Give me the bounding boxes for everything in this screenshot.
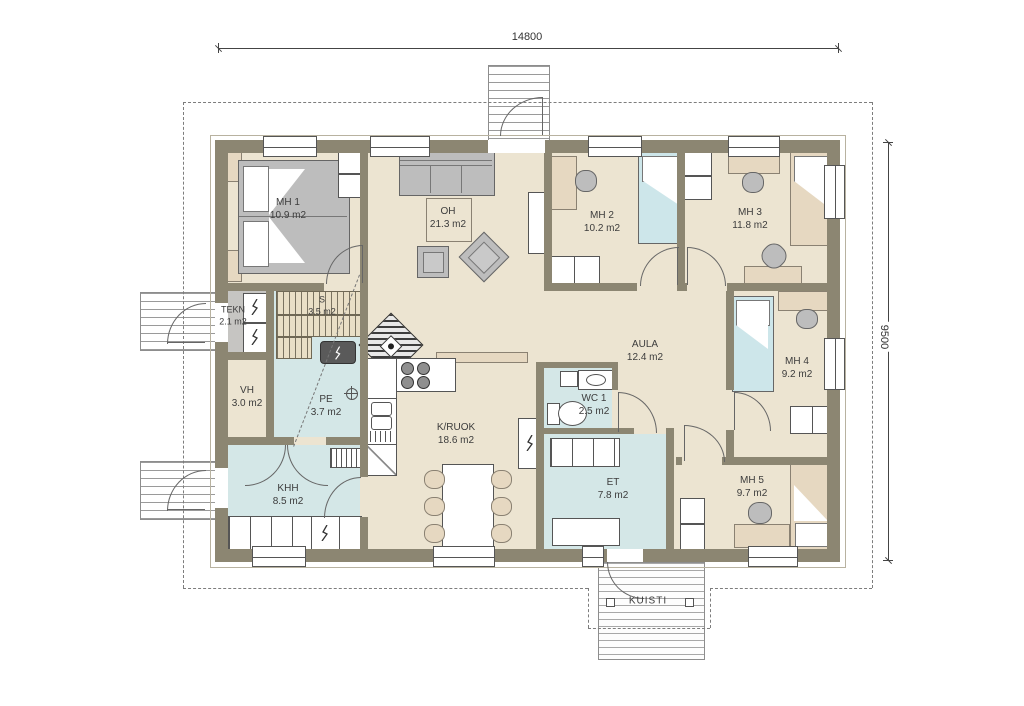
- room-area: 9.7 m2: [737, 487, 768, 500]
- back-door-opening: [488, 140, 545, 153]
- roof-outline-right: [872, 102, 873, 588]
- wall-wc-top: [544, 362, 612, 368]
- wall-mh3-mh4: [727, 283, 827, 291]
- wall-vh-pe: [266, 352, 274, 445]
- desk: [778, 291, 834, 311]
- roof-outline-bottom-right: [710, 588, 872, 589]
- room-area: 3.0 m2: [232, 397, 263, 410]
- shower-drain: [346, 388, 358, 400]
- utility-counter: [228, 516, 312, 550]
- window: [728, 136, 780, 157]
- porch-label: KUISTI: [629, 595, 667, 608]
- room-label-mh5: MH 5 9.7 m2: [737, 474, 768, 500]
- dishwasher: [366, 444, 397, 476]
- door-leaf-back-entrance: [542, 97, 543, 135]
- window: [370, 136, 430, 157]
- window: [582, 546, 604, 567]
- lightning-icon: [525, 435, 535, 451]
- kitchen-sink: [366, 398, 397, 446]
- wall-pe-khh: [326, 437, 368, 445]
- pillow: [642, 156, 680, 182]
- closet: [680, 524, 705, 550]
- floor-plan: 14800 9500: [0, 0, 1024, 706]
- room-area: 11.8 m2: [732, 219, 767, 232]
- lightning-icon: [320, 525, 330, 541]
- wall-et-mh5: [666, 428, 674, 549]
- pillow: [243, 221, 269, 267]
- room-name: WC 1: [579, 392, 610, 405]
- utility-cabinet: [339, 516, 362, 550]
- sauna-bench: [276, 337, 312, 359]
- room-area: 12.4 m2: [627, 351, 663, 364]
- dining-chair: [424, 524, 445, 543]
- sofa-cushion-line: [430, 165, 431, 193]
- entry-closet: [550, 438, 620, 467]
- kitchen-cabinet: [366, 358, 397, 400]
- dimension-depth-label: 9500: [878, 322, 890, 352]
- door-leaf-mh3: [687, 247, 688, 285]
- pillow: [795, 523, 830, 547]
- room-label-oh: OH 21.3 m2: [430, 205, 466, 231]
- dimension-line-top: [218, 48, 838, 49]
- closet: [549, 256, 575, 284]
- stove-burner: [401, 362, 414, 375]
- room-label-aula: AULA 12.4 m2: [627, 338, 663, 364]
- wall-oh-mh2: [544, 153, 552, 283]
- room-name: TEKN: [219, 304, 247, 316]
- sofa-cushion-line: [461, 165, 462, 193]
- bookshelf: [528, 192, 545, 254]
- room-name: S: [308, 294, 336, 306]
- sink-bowl: [371, 402, 392, 416]
- wall-aula-mh4: [726, 291, 734, 390]
- desk-chair: [796, 309, 818, 329]
- room-label-mh1: MH 1 10.9 m2: [270, 196, 306, 222]
- room-name: MH 5: [737, 474, 768, 487]
- khh-door-opening: [215, 468, 228, 508]
- sofa: [399, 152, 495, 196]
- wall-mh4-mh5: [722, 457, 827, 465]
- roof-outline-porch-bottom: [588, 628, 710, 629]
- room-label-et: ET 7.8 m2: [598, 476, 629, 502]
- wall-wc-right: [612, 362, 618, 390]
- lightning-icon: [250, 329, 260, 345]
- dining-chair: [491, 497, 512, 516]
- blanket-fold: [269, 217, 305, 263]
- dining-chair: [491, 524, 512, 543]
- door-leaf-mh1: [362, 245, 363, 283]
- room-label-mh2: MH 2 10.2 m2: [584, 209, 620, 235]
- room-area: 2.1 m2: [219, 316, 247, 328]
- drain-cross: [344, 393, 358, 394]
- desk-chair: [742, 172, 764, 193]
- desk-chair: [575, 170, 597, 192]
- desk-chair: [748, 502, 772, 524]
- desk: [734, 524, 790, 548]
- room-name: KUISTI: [629, 595, 667, 608]
- blanket-fold: [794, 485, 828, 521]
- room-label-khh: KHH 8.5 m2: [273, 482, 304, 508]
- room-area: 3.7 m2: [311, 406, 342, 419]
- closet: [680, 498, 705, 524]
- room-area: 21.3 m2: [430, 218, 466, 231]
- room-label-wc1: WC 1 2.5 m2: [579, 392, 610, 418]
- blanket-fold: [736, 325, 768, 349]
- stove-burner: [417, 362, 430, 375]
- wall-khh-kitchen: [360, 517, 368, 549]
- armchair: [417, 246, 449, 278]
- room-name: VH: [232, 384, 263, 397]
- closet: [790, 406, 813, 434]
- door-leaf-tekn-exterior: [167, 342, 205, 343]
- window: [588, 136, 642, 157]
- desk: [549, 156, 577, 210]
- blanket-fold: [643, 181, 679, 205]
- wall-tekn-sauna: [266, 291, 274, 352]
- wc-sink: [578, 370, 613, 390]
- room-area: 3.5 m2: [308, 306, 336, 318]
- window: [252, 546, 306, 567]
- door-leaf-mh4: [734, 392, 735, 430]
- wall-sauna-kitchen: [360, 283, 368, 477]
- room-label-tekn: TEKN 2.1 m2: [219, 304, 247, 327]
- room-label-mh3: MH 3 11.8 m2: [732, 206, 767, 232]
- door-leaf-mh2: [677, 247, 678, 285]
- pillow: [736, 300, 770, 326]
- fireplace-flue: [387, 342, 395, 350]
- door-leaf-khh-exterior: [167, 509, 205, 510]
- closet: [684, 176, 712, 200]
- room-label-pe: PE 3.7 m2: [311, 393, 342, 419]
- armchair-seat: [423, 252, 444, 273]
- pillow: [243, 166, 269, 212]
- window: [263, 136, 317, 157]
- room-name: OH: [430, 205, 466, 218]
- lightning-icon: [250, 299, 260, 315]
- lounge-chair-seat: [468, 241, 501, 274]
- room-name: ET: [598, 476, 629, 489]
- room-area: 10.9 m2: [270, 209, 306, 222]
- blanket-fold: [794, 181, 828, 207]
- exterior-wall-bottom: [215, 549, 840, 562]
- closet: [684, 152, 712, 176]
- wall-vh-khh: [228, 437, 274, 445]
- room-label-kruok: K/RUOK 18.6 m2: [437, 421, 475, 447]
- room-area: 7.8 m2: [598, 489, 629, 502]
- room-name: MH 1: [270, 196, 306, 209]
- roof-outline-bottom-left: [183, 588, 588, 589]
- vent-unit: [330, 448, 362, 468]
- window: [748, 546, 798, 567]
- room-area: 9.2 m2: [782, 368, 813, 381]
- room-label-vh: VH 3.0 m2: [232, 384, 263, 410]
- dining-chair: [424, 497, 445, 516]
- room-name: KHH: [273, 482, 304, 495]
- roof-outline-porch-right: [710, 588, 711, 628]
- dining-chair: [424, 470, 445, 489]
- sofa-back-line: [400, 165, 492, 166]
- room-name: PE: [311, 393, 342, 406]
- lightning-icon: [334, 346, 342, 360]
- washing-machine: [311, 516, 340, 550]
- porch-door-opening: [607, 549, 643, 562]
- dining-chair: [491, 470, 512, 489]
- door-leaf-mh5: [684, 425, 685, 461]
- roof-outline-left: [183, 102, 184, 588]
- stove-burner: [401, 376, 414, 389]
- room-name: MH 4: [782, 355, 813, 368]
- fireplace-core: [380, 335, 403, 358]
- sink-bowl: [371, 416, 392, 430]
- wall-mh2-aula: [544, 283, 637, 291]
- wall-mh1-bottom: [228, 283, 324, 291]
- sofa-back-line: [400, 160, 492, 161]
- wall-tekn-vh: [228, 352, 266, 360]
- room-name: AULA: [627, 338, 663, 351]
- stove-burner: [417, 376, 430, 389]
- sauna-bench: [276, 315, 362, 337]
- window: [433, 546, 495, 567]
- window: [824, 338, 845, 390]
- room-area: 8.5 m2: [273, 495, 304, 508]
- porch-post: [606, 598, 615, 607]
- door-leaf-wc1: [618, 392, 619, 432]
- wall-kitchen-et: [536, 362, 544, 549]
- room-area: 2.5 m2: [579, 405, 610, 418]
- closet: [574, 256, 600, 284]
- wall-pe-khh: [274, 437, 294, 445]
- window: [824, 165, 845, 219]
- room-label-sauna: S 3.5 m2: [308, 294, 336, 317]
- room-area: 10.2 m2: [584, 222, 620, 235]
- sink-basin: [586, 374, 606, 386]
- room-label-mh4: MH 4 9.2 m2: [782, 355, 813, 381]
- porch-post: [685, 598, 694, 607]
- room-area: 18.6 m2: [437, 434, 475, 447]
- room-name: MH 2: [584, 209, 620, 222]
- single-bed: [732, 296, 774, 392]
- dimension-width-label: 14800: [509, 31, 546, 43]
- wall-mh5-stub: [676, 457, 682, 465]
- kitchen-counter: [394, 358, 456, 392]
- entry-bench: [552, 518, 620, 546]
- sink-drainboard: [370, 431, 392, 442]
- room-name: MH 3: [732, 206, 767, 219]
- roof-outline-porch-left: [588, 588, 589, 628]
- dining-table: [442, 464, 494, 548]
- room-name: K/RUOK: [437, 421, 475, 434]
- wc-cabinet: [560, 371, 578, 387]
